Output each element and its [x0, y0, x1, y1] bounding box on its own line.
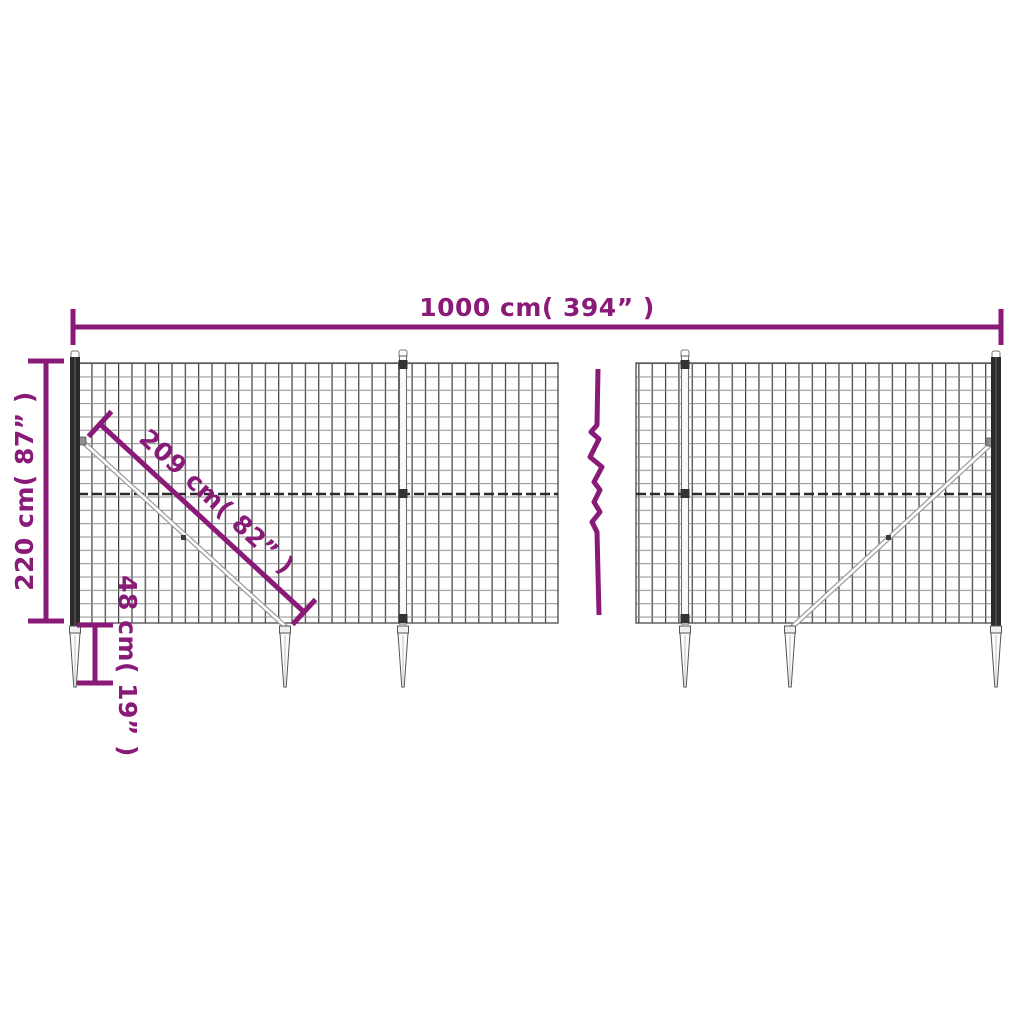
- post-right-end: [991, 351, 1001, 626]
- post-clamp-bottom: [399, 614, 408, 623]
- ground-spike: [680, 626, 691, 687]
- ground-spike: [398, 626, 409, 687]
- fence-dimension-diagram: 1000 cm( 394” ) 220 cm( 87” ) 209 cm( 82…: [0, 0, 1024, 1024]
- post-clamp-bottom: [681, 614, 690, 623]
- dim-total-height: 220 cm( 87” ): [10, 361, 64, 621]
- dim-total-width: 1000 cm( 394” ): [73, 293, 1001, 345]
- post-clamp-top: [681, 360, 690, 369]
- ground-spikes: [70, 626, 1002, 687]
- brace-clamp: [886, 535, 891, 540]
- ground-spike: [785, 626, 796, 687]
- dim-label-total-height: 220 cm( 87” ): [10, 391, 39, 591]
- ground-spike: [991, 626, 1002, 687]
- dim-label-total-width: 1000 cm( 394” ): [419, 293, 655, 322]
- brace-clamp: [181, 535, 186, 540]
- dim-label-spike-height: 48 cm( 19” ): [113, 575, 142, 757]
- post-left-end: [70, 351, 80, 626]
- post-clamp-mid: [399, 489, 408, 498]
- post-intermediate-left: [399, 350, 408, 624]
- post-clamp-mid: [681, 489, 690, 498]
- break-symbol: [590, 369, 602, 615]
- ground-spike: [280, 626, 291, 687]
- post-intermediate-right: [681, 350, 690, 624]
- ground-spike: [70, 626, 81, 687]
- diagram-canvas: 1000 cm( 394” ) 220 cm( 87” ) 209 cm( 82…: [0, 0, 1024, 1024]
- fence-left-panel: [78, 363, 558, 623]
- post-clamp-top: [399, 360, 408, 369]
